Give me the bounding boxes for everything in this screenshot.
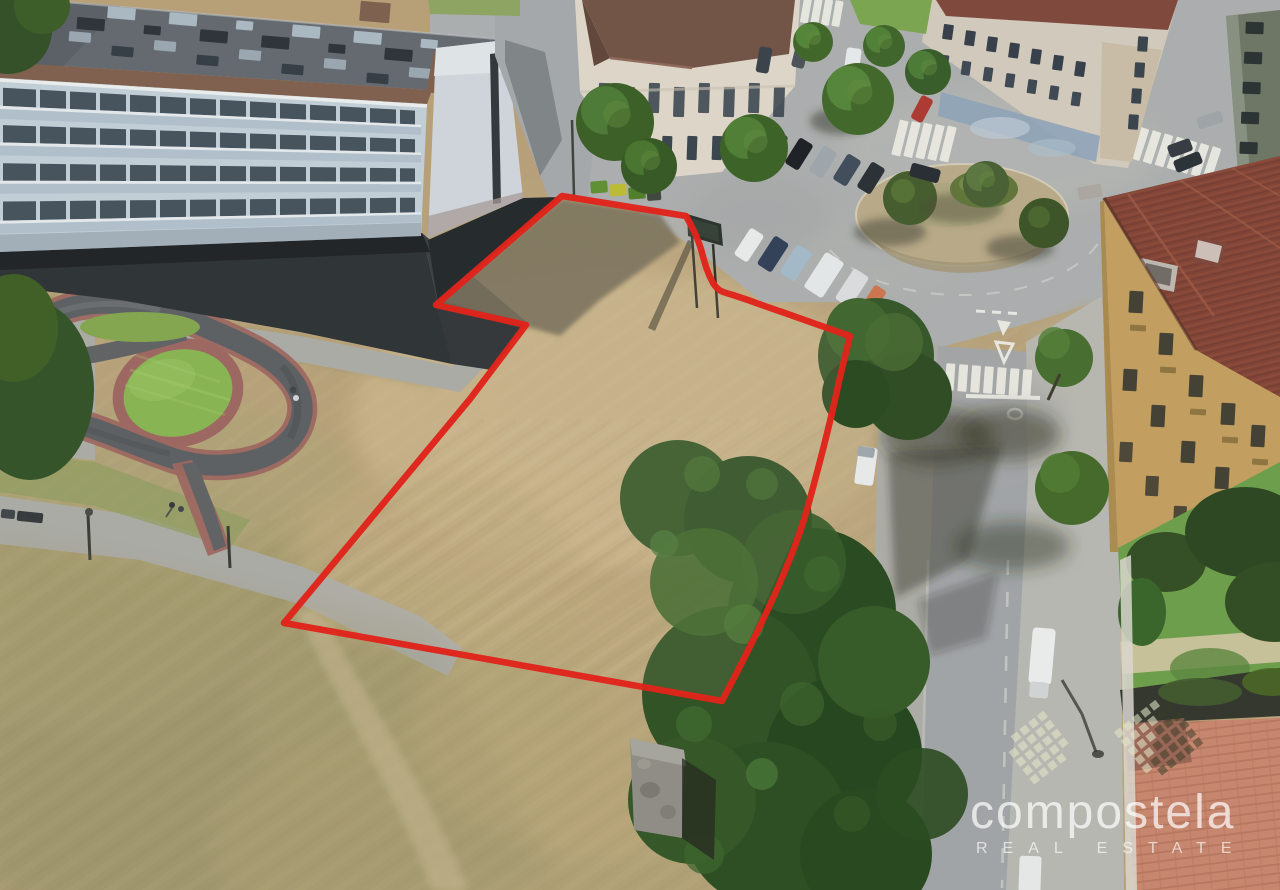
svg-text:REAL ESTATE: REAL ESTATE [976,840,1247,857]
svg-text:compostela: compostela [970,786,1235,839]
